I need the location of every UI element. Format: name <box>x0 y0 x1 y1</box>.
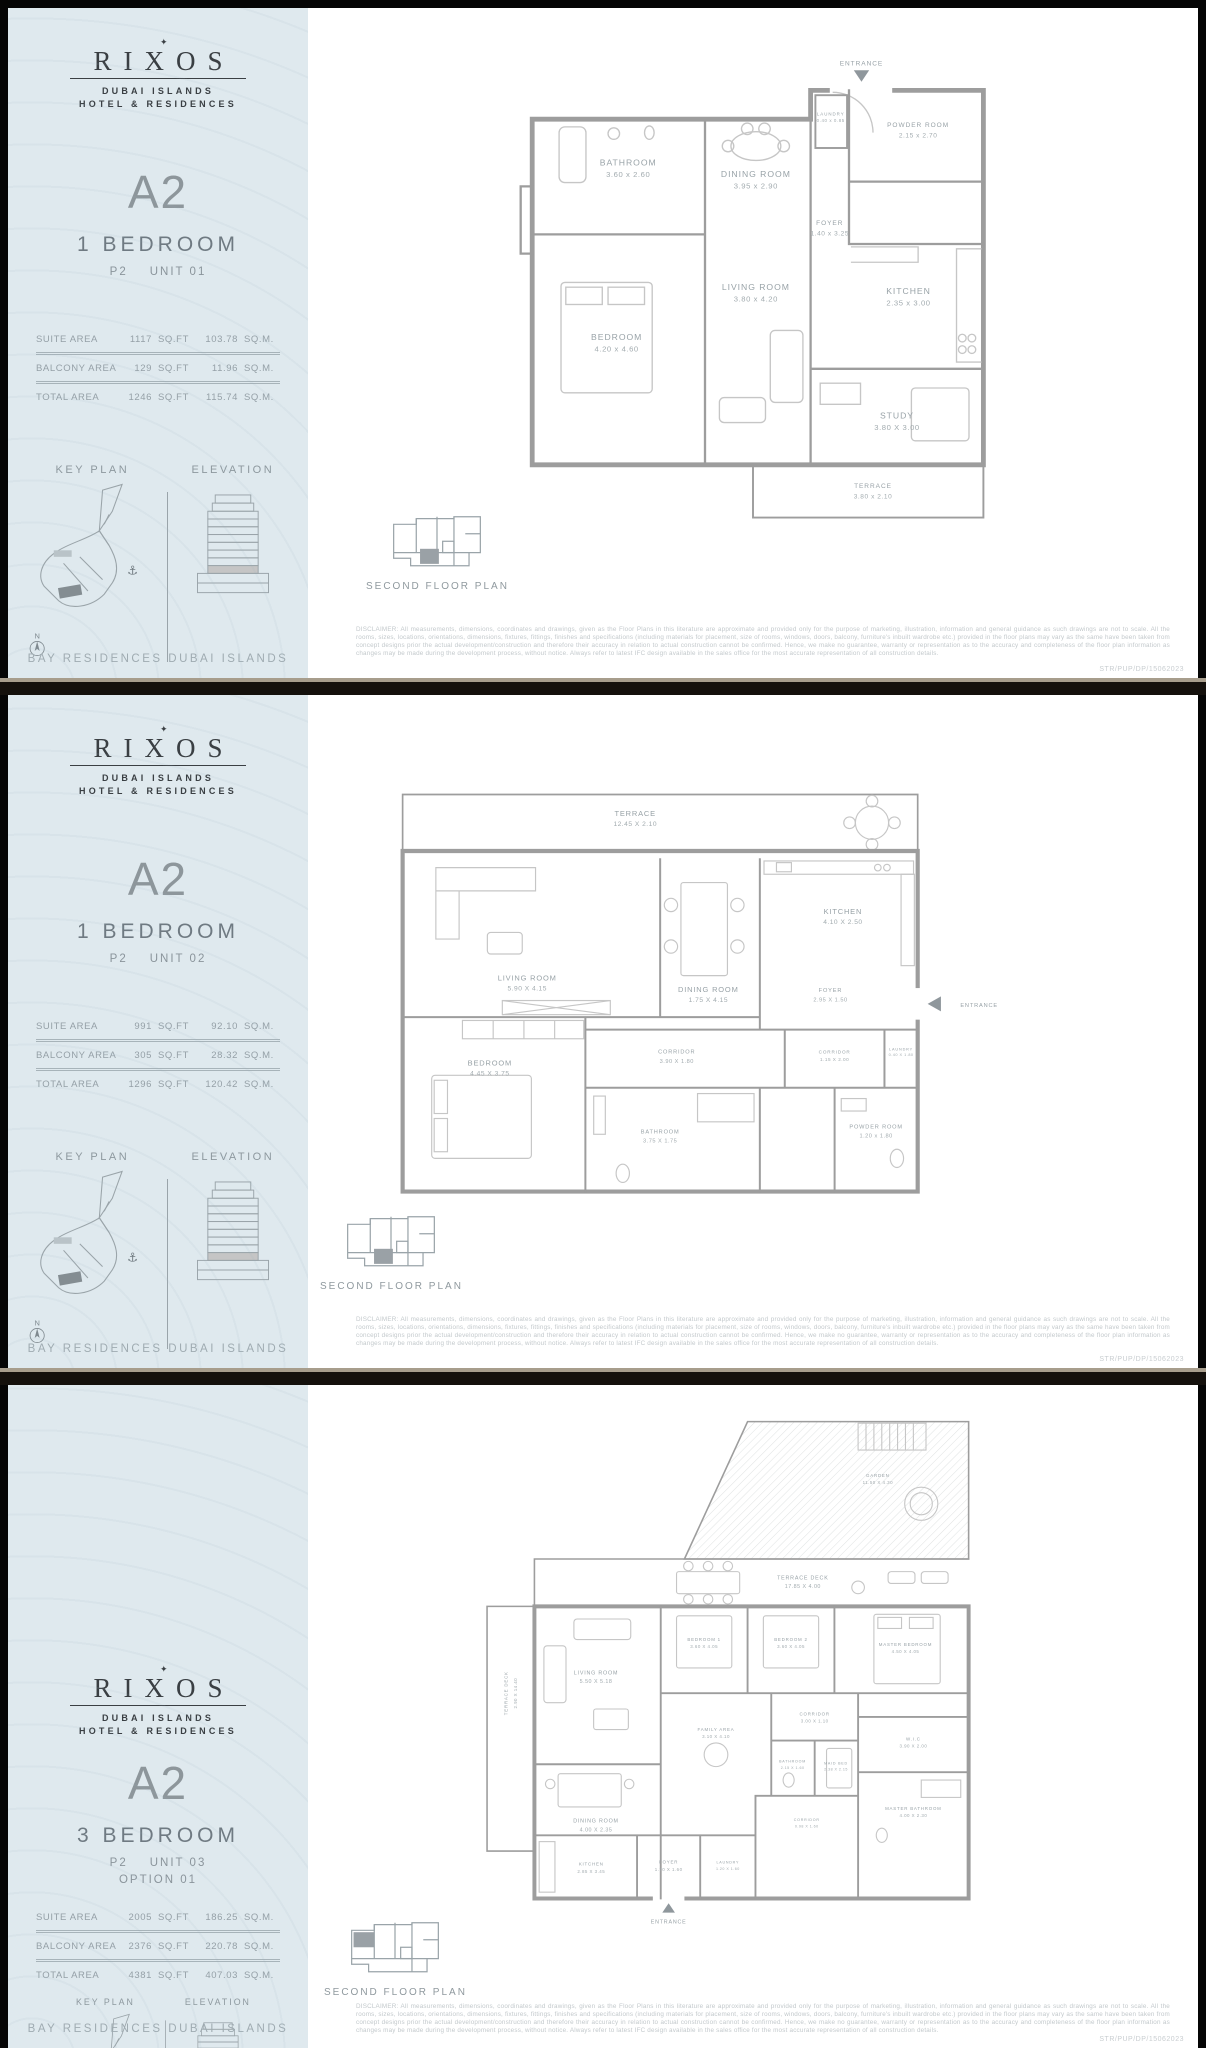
room-dim: 4.00 X 2.30 <box>899 1813 927 1818</box>
room-dim: 3.60 X 4.05 <box>777 1644 805 1649</box>
elevation-title: ELEVATION <box>172 464 294 476</box>
room-dim: 3.90 X 1.80 <box>660 1059 694 1065</box>
keyplan-title: KEY PLAN <box>22 464 163 476</box>
room-label: STUDY <box>880 411 914 421</box>
brand-tagline-2: HOTEL & RESIDENCES <box>8 786 308 796</box>
sidebar: RIXOS DUBAI ISLANDS HOTEL & RESIDENCES A… <box>8 8 308 678</box>
room-label: MAID BED <box>824 1761 848 1765</box>
area-sqft-value: 1117 <box>128 334 158 345</box>
level-label: P2 <box>110 953 128 965</box>
second-floor-plan-label: SECOND FLOOR PLAN <box>324 1987 467 1998</box>
rixos-logo: RIXOS DUBAI ISLANDS HOTEL & RESIDENCES <box>8 46 308 109</box>
room-label: LAUNDRY <box>716 1861 739 1865</box>
elevation-diagram <box>196 492 270 596</box>
keyplan-island-map: ⚓ <box>31 1169 153 1311</box>
mini-map-highlight-unit <box>420 548 439 563</box>
room-dim: 3.80 x 2.10 <box>854 493 893 500</box>
mini-map-highlight-unit <box>374 1248 393 1263</box>
keyplan-highlight-building <box>58 1271 82 1285</box>
unit-option: OPTION 01 <box>8 1874 308 1886</box>
table-row: TOTAL AREA 1246 SQ.FT 115.74 SQ.M. <box>36 382 280 410</box>
room-dim: 12.45 X 2.10 <box>613 821 657 828</box>
room-label: MASTER BATHROOM <box>885 1806 942 1811</box>
sqm-unit: SQ.M. <box>244 1021 276 1032</box>
room-dim: 5.50 X 5.18 <box>580 1679 613 1685</box>
page-separator <box>0 678 1206 695</box>
room-label: CORRIDOR <box>800 1711 830 1716</box>
second-floor-plan-label: SECOND FLOOR PLAN <box>320 1281 463 1292</box>
table-row: BALCONY AREA 129 SQ.FT 11.96 SQ.M. <box>36 353 280 382</box>
elevation-diagram <box>196 1179 270 1283</box>
unit-floor-line: P2 UNIT 03 <box>8 1857 308 1869</box>
room-dim: 2.90 X 14.40 <box>513 1678 518 1709</box>
sqft-unit: SQ.FT <box>158 1021 194 1032</box>
sqft-unit: SQ.FT <box>158 1970 194 1981</box>
room-dim: 0.40 X 1.80 <box>889 1053 914 1057</box>
room-label: BATHROOM <box>779 1760 806 1764</box>
anchor-icon: ⚓ <box>127 1251 138 1265</box>
second-floor-plan-label: SECOND FLOOR PLAN <box>366 581 509 592</box>
plan-area: ENTRANCE TERRACE 12.45 X 2.10 LIVING ROO… <box>308 695 1198 1368</box>
sqm-unit: SQ.M. <box>244 1970 276 1981</box>
level-label: P2 <box>110 1857 128 1869</box>
room-label: DINING ROOM <box>573 1819 619 1825</box>
room-label: FOYER <box>816 220 843 227</box>
floor-plate-mini-map <box>342 1213 440 1271</box>
room-label: FAMILY AREA <box>698 1727 735 1732</box>
room-dim: 1.20 x 1.80 <box>859 1134 892 1140</box>
room-label: KITCHEN <box>886 286 931 296</box>
sqft-unit: SQ.FT <box>158 1050 194 1061</box>
room-dim: 4.45 X 3.75 <box>470 1070 509 1077</box>
area-row-label: SUITE AREA <box>36 334 128 345</box>
keyplan-elevation-section: KEY PLAN ⚓ N <box>8 464 308 665</box>
entrance-label: ENTRANCE <box>840 60 884 67</box>
area-row-label: BALCONY AREA <box>36 363 128 374</box>
room-label: KITCHEN <box>824 907 863 916</box>
disclaimer-text: DISCLAIMER: All measurements, dimensions… <box>356 2003 1170 2035</box>
area-row-label: BALCONY AREA <box>36 1050 128 1061</box>
area-row-label: SUITE AREA <box>36 1912 128 1923</box>
room-label: KITCHEN <box>579 1861 604 1866</box>
area-sqm-value: 92.10 <box>194 1021 244 1032</box>
level-label: P2 <box>110 266 128 278</box>
unit-type: 1 BEDROOM <box>8 920 308 944</box>
keyplan-title: KEY PLAN <box>49 1998 162 2008</box>
sqm-unit: SQ.M. <box>244 1912 276 1923</box>
room-dim: 0.98 X 1.60 <box>795 1824 819 1828</box>
sidebar: RIXOS DUBAI ISLANDS HOTEL & RESIDENCES A… <box>8 1385 308 2048</box>
terrace-outline <box>753 465 983 518</box>
room-label: BEDROOM <box>468 1058 512 1067</box>
sqft-unit: SQ.FT <box>158 1079 194 1090</box>
floor-plan-unit-01: ENTRANCE <box>513 52 993 542</box>
floor-plan-unit-02: ENTRANCE TERRACE 12.45 X 2.10 LIVING ROO… <box>386 743 1034 1208</box>
anchor-icon: ⚓ <box>127 564 138 578</box>
sqft-unit: SQ.FT <box>158 1941 194 1952</box>
room-dim: 3.95 x 2.90 <box>734 181 778 190</box>
brand-name: RIXOS <box>81 1673 234 1704</box>
brand-tagline-1: DUBAI ISLANDS <box>8 773 308 783</box>
room-dim: 2.85 X 3.45 <box>577 1869 605 1874</box>
room-label: BATHROOM <box>600 157 657 167</box>
keyplan-hatch-block <box>54 1237 72 1244</box>
elevation-title: ELEVATION <box>172 1151 294 1163</box>
floor-plate-mini-map <box>388 513 486 571</box>
keyplan-divider <box>167 492 168 662</box>
area-table: SUITE AREA 991 SQ.FT 92.10 SQ.M. BALCONY… <box>36 1011 280 1097</box>
area-sqm-value: 186.25 <box>194 1912 244 1923</box>
room-dim: 2.35 x 3.00 <box>886 298 930 307</box>
unit-number: UNIT 02 <box>150 953 207 965</box>
room-label: LIVING ROOM <box>498 974 557 983</box>
keyplan-title: KEY PLAN <box>22 1151 163 1163</box>
terrace-outline <box>403 795 918 851</box>
second-floor-plan-thumbnail: SECOND FLOOR PLAN <box>366 513 509 592</box>
room-dim: 2.15 X 1.60 <box>781 1766 805 1770</box>
project-name: BAY RESIDENCES DUBAI ISLANDS <box>8 2023 308 2035</box>
entrance-arrow-icon <box>928 996 941 1011</box>
keyplan-island-map: ⚓ <box>31 482 153 624</box>
room-label: TERRACE DECK <box>777 1576 828 1582</box>
logo-rule <box>70 1705 246 1706</box>
area-sqft-value: 991 <box>128 1021 158 1032</box>
document-code: STR/PUP/DP/15062023 <box>1099 2036 1184 2043</box>
sqm-unit: SQ.M. <box>244 1050 276 1061</box>
brand-name: RIXOS <box>81 733 234 764</box>
room-label: FOYER <box>819 988 843 994</box>
keyplan-elevation-section: KEY PLAN ⚓ N <box>8 1151 308 1352</box>
room-label: MASTER BEDROOM <box>879 1642 932 1647</box>
document-code: STR/PUP/DP/15062023 <box>1099 666 1184 673</box>
room-dim: 4.20 x 4.60 <box>595 345 639 354</box>
logo-rule <box>70 765 246 766</box>
sidebar: RIXOS DUBAI ISLANDS HOTEL & RESIDENCES A… <box>8 695 308 1368</box>
sqft-unit: SQ.FT <box>158 363 194 374</box>
sqft-unit: SQ.FT <box>158 1912 194 1923</box>
room-dim: 0.40 x 0.85 <box>817 118 845 123</box>
unit-code: A2 <box>8 165 308 219</box>
room-dim: 3.80 x 4.20 <box>734 295 778 304</box>
room-label: CORRIDOR <box>658 1050 695 1056</box>
room-dim: 3.10 X 4.10 <box>702 1734 730 1739</box>
table-row: TOTAL AREA 4381 SQ.FT 407.03 SQ.M. <box>36 1960 280 1988</box>
room-label: BEDROOM 2 <box>774 1637 808 1642</box>
floorplan-page-3: RIXOS DUBAI ISLANDS HOTEL & RESIDENCES A… <box>8 1385 1198 2048</box>
second-floor-plan-thumbnail: SECOND FLOOR PLAN <box>320 1213 463 1292</box>
room-label: TERRACE <box>854 483 892 490</box>
table-row: SUITE AREA 991 SQ.FT 92.10 SQ.M. <box>36 1011 280 1040</box>
room-dim: 4.00 X 2.35 <box>580 1827 613 1833</box>
room-label: TERRACE DECK <box>504 1671 509 1715</box>
area-table: SUITE AREA 1117 SQ.FT 103.78 SQ.M. BALCO… <box>36 324 280 410</box>
room-dim: 4.10 X 2.50 <box>823 919 862 926</box>
room-dim: 3.75 X 1.75 <box>643 1139 677 1145</box>
area-row-label: TOTAL AREA <box>36 392 128 403</box>
room-dim: 1.40 x 3.25 <box>811 230 850 237</box>
room-dim: 3.80 X 3.00 <box>874 423 920 432</box>
room-dim: 3.60 X 4.05 <box>690 1644 718 1649</box>
plan-area: GARDEN 11.50 X 4.30 TERRACE DECK 17.85 X… <box>308 1385 1198 2048</box>
table-row: BALCONY AREA 2376 SQ.FT 220.78 SQ.M. <box>36 1931 280 1960</box>
brand-tagline-1: DUBAI ISLANDS <box>8 86 308 96</box>
keyplan-column: KEY PLAN ⚓ N <box>22 1151 163 1352</box>
brand-tagline-2: HOTEL & RESIDENCES <box>8 1726 308 1736</box>
logo-rule <box>70 78 246 79</box>
unit-floor-line: P2 UNIT 02 <box>8 953 308 965</box>
elevation-column: ELEVATION <box>172 464 294 665</box>
sqm-unit: SQ.M. <box>244 1079 276 1090</box>
unit-type: 1 BEDROOM <box>8 233 308 257</box>
room-label: CORRIDOR <box>794 1818 820 1822</box>
document-code: STR/PUP/DP/15062023 <box>1099 1356 1184 1363</box>
room-label: DINING ROOM <box>678 985 739 994</box>
unit-type: 3 BEDROOM <box>8 1824 308 1848</box>
room-dim: 1.15 X 2.00 <box>820 1057 849 1062</box>
room-dim: 1.20 X 1.60 <box>716 1867 740 1871</box>
entrance-label: ENTRANCE <box>651 1920 687 1926</box>
entrance-arrow-icon <box>662 1903 675 1912</box>
svg-text:N: N <box>34 632 39 641</box>
room-label: LIVING ROOM <box>722 282 790 292</box>
sqm-unit: SQ.M. <box>244 334 276 345</box>
unit-code: A2 <box>8 1756 308 1810</box>
keyplan-hatch-block <box>54 550 72 557</box>
area-sqm-value: 220.78 <box>194 1941 244 1952</box>
brand-tagline-1: DUBAI ISLANDS <box>8 1713 308 1723</box>
area-sqft-value: 1246 <box>128 392 158 403</box>
room-label: LAUNDRY <box>889 1047 913 1051</box>
area-sqft-value: 2005 <box>128 1912 158 1923</box>
floorplan-page-2: RIXOS DUBAI ISLANDS HOTEL & RESIDENCES A… <box>8 695 1198 1368</box>
room-dim: 2.15 x 2.70 <box>899 132 938 139</box>
room-label: CORRIDOR <box>819 1050 851 1055</box>
room-dim: 3.90 X 2.00 <box>899 1744 927 1749</box>
area-row-label: TOTAL AREA <box>36 1970 128 1981</box>
area-sqm-value: 28.32 <box>194 1050 244 1061</box>
room-dim: 11.50 X 4.30 <box>863 1480 893 1485</box>
table-row: TOTAL AREA 1296 SQ.FT 120.42 SQ.M. <box>36 1069 280 1097</box>
room-label: BATHROOM <box>641 1129 680 1135</box>
mini-map-highlight-unit <box>354 1932 375 1947</box>
room-dim: 4.50 X 4.05 <box>892 1649 920 1654</box>
keyplan-highlight-building <box>58 584 82 598</box>
room-label: BEDROOM <box>591 332 642 342</box>
room-dim: 17.85 X 4.00 <box>785 1584 821 1590</box>
elevation-highlight-floor <box>208 566 258 574</box>
elevation-column: ELEVATION <box>172 1151 294 1352</box>
rixos-logo: RIXOS DUBAI ISLANDS HOTEL & RESIDENCES <box>8 1673 308 1736</box>
plan-area: ENTRANCE <box>308 8 1198 678</box>
elevation-title: ELEVATION <box>169 1998 267 2008</box>
sqft-unit: SQ.FT <box>158 334 194 345</box>
area-row-label: SUITE AREA <box>36 1021 128 1032</box>
room-dim: 3.60 x 2.60 <box>606 170 650 179</box>
area-sqm-value: 11.96 <box>194 363 244 374</box>
entrance-label: ENTRANCE <box>960 1003 998 1009</box>
entrance-arrow-icon <box>854 70 869 82</box>
rixos-logo: RIXOS DUBAI ISLANDS HOTEL & RESIDENCES <box>8 733 308 796</box>
table-row: BALCONY AREA 305 SQ.FT 28.32 SQ.M. <box>36 1040 280 1069</box>
brand-tagline-2: HOTEL & RESIDENCES <box>8 99 308 109</box>
area-sqft-value: 305 <box>128 1050 158 1061</box>
floor-plate-mini-map <box>346 1919 444 1977</box>
room-label: BEDROOM 1 <box>687 1637 721 1642</box>
area-sqm-value: 120.42 <box>194 1079 244 1090</box>
sqm-unit: SQ.M. <box>244 363 276 374</box>
unit-number: UNIT 01 <box>150 266 207 278</box>
project-name: BAY RESIDENCES DUBAI ISLANDS <box>8 1343 308 1355</box>
unit-floor-line: P2 UNIT 01 <box>8 266 308 278</box>
room-dim: 1.70 X 1.60 <box>655 1867 683 1872</box>
room-dim: 5.90 X 4.15 <box>508 986 547 993</box>
room-label: FOYER <box>659 1860 678 1865</box>
elevation-highlight-floor <box>208 1253 258 1261</box>
exterior-walls <box>532 90 983 464</box>
svg-text:N: N <box>34 1319 39 1328</box>
keyplan-column: KEY PLAN ⚓ N <box>22 464 163 665</box>
area-sqft-value: 129 <box>128 363 158 374</box>
project-name: BAY RESIDENCES DUBAI ISLANDS <box>8 653 308 665</box>
room-label: LIVING ROOM <box>574 1670 618 1676</box>
page-separator <box>0 1368 1206 1385</box>
disclaimer-text: DISCLAIMER: All measurements, dimensions… <box>356 626 1170 658</box>
area-sqft-value: 4381 <box>128 1970 158 1981</box>
second-floor-plan-thumbnail: SECOND FLOOR PLAN <box>324 1919 467 1998</box>
area-sqm-value: 103.78 <box>194 334 244 345</box>
interior-walls <box>532 90 983 464</box>
unit-number: UNIT 03 <box>150 1857 207 1869</box>
deck-furniture <box>677 1561 949 1604</box>
area-row-label: TOTAL AREA <box>36 1079 128 1090</box>
floorplan-page-1: RIXOS DUBAI ISLANDS HOTEL & RESIDENCES A… <box>8 8 1198 678</box>
room-label: W.I.C <box>906 1737 921 1742</box>
area-sqm-value: 407.03 <box>194 1970 244 1981</box>
room-label: DINING ROOM <box>721 169 791 179</box>
keyplan-divider <box>167 1179 168 1349</box>
table-row: SUITE AREA 2005 SQ.FT 186.25 SQ.M. <box>36 1902 280 1931</box>
disclaimer-text: DISCLAIMER: All measurements, dimensions… <box>356 1316 1170 1348</box>
area-sqft-value: 1296 <box>128 1079 158 1090</box>
area-sqft-value: 2376 <box>128 1941 158 1952</box>
room-label: POWDER ROOM <box>849 1124 903 1130</box>
room-label: POWDER ROOM <box>887 122 949 129</box>
room-label: TERRACE <box>614 809 656 818</box>
unit-code: A2 <box>8 852 308 906</box>
room-dim: 2.95 X 1.50 <box>813 997 847 1003</box>
room-dim: 1.75 X 4.15 <box>689 997 728 1004</box>
area-row-label: BALCONY AREA <box>36 1941 128 1952</box>
room-label: LAUNDRY <box>817 111 845 116</box>
room-dim: 3.00 X 1.10 <box>801 1718 829 1723</box>
area-sqm-value: 115.74 <box>194 392 244 403</box>
floor-plan-unit-03: GARDEN 11.50 X 4.30 TERRACE DECK 17.85 X… <box>416 1409 1016 1930</box>
furniture <box>539 1614 961 1892</box>
brand-name: RIXOS <box>81 46 234 77</box>
sqm-unit: SQ.M. <box>244 1941 276 1952</box>
area-table: SUITE AREA 2005 SQ.FT 186.25 SQ.M. BALCO… <box>36 1902 280 1988</box>
sqft-unit: SQ.FT <box>158 392 194 403</box>
room-dim: 2.38 X 2.15 <box>824 1768 848 1772</box>
table-row: SUITE AREA 1117 SQ.FT 103.78 SQ.M. <box>36 324 280 353</box>
room-label: GARDEN <box>866 1473 890 1478</box>
sqm-unit: SQ.M. <box>244 392 276 403</box>
